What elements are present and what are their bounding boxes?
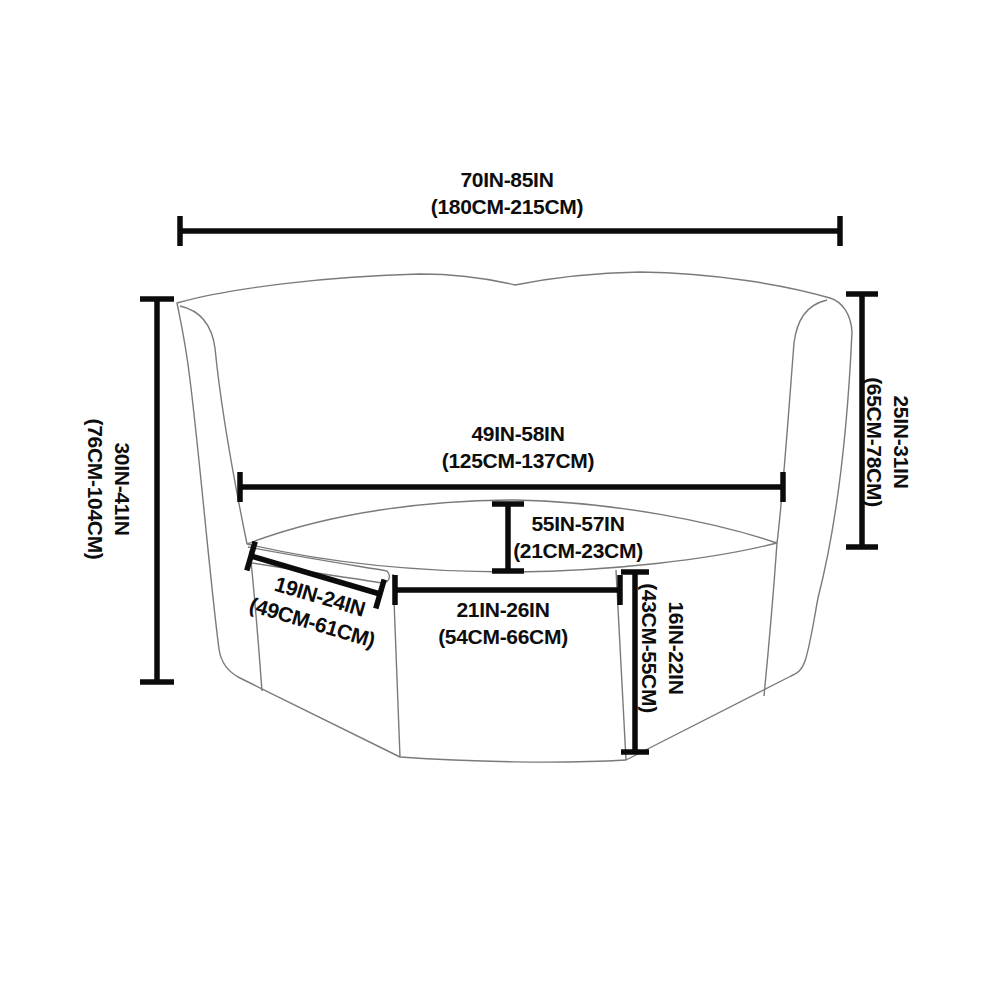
dimension-lines-group — [140, 216, 878, 752]
dimension-line-back-width — [240, 472, 783, 502]
sofa-left-inner-back-edge — [180, 306, 247, 544]
label-front-panel-width-in: 21IN-26IN — [438, 597, 568, 624]
label-back-to-seat-in: 55IN-57IN — [513, 511, 643, 538]
label-back-to-seat-cm: (21CM-23CM) — [513, 538, 643, 565]
label-back-height-right-in: 25IN-31IN — [887, 377, 914, 507]
label-back-height-left-cm: (76CM-104CM) — [81, 418, 108, 559]
label-back-height-left-in: 30IN-41IN — [108, 418, 135, 559]
label-total-width-cm: (180CM-215CM) — [431, 194, 583, 221]
sofa-seat-lower-arc — [247, 543, 777, 572]
label-back-height-left: 30IN-41IN (76CM-104CM) — [81, 418, 135, 559]
sofa-right-inner-back-edge — [764, 300, 827, 696]
label-front-panel-height: 16IN-22IN (43CM-55CM) — [635, 583, 689, 713]
label-back-width-cm: (125CM-137CM) — [442, 448, 594, 475]
label-back-width-in: 49IN-58IN — [442, 421, 594, 448]
diagram-canvas-svg — [0, 0, 1000, 1000]
label-front-panel-height-in: 16IN-22IN — [662, 583, 689, 713]
label-back-height-right: 25IN-31IN (65CM-78CM) — [860, 377, 914, 507]
label-front-panel-height-cm: (43CM-55CM) — [635, 583, 662, 713]
label-front-panel-width-cm: (54CM-66CM) — [438, 624, 568, 651]
label-back-width: 49IN-58IN (125CM-137CM) — [442, 421, 594, 475]
label-total-width: 70IN-85IN (180CM-215CM) — [431, 167, 583, 221]
label-back-height-right-cm: (65CM-78CM) — [860, 377, 887, 507]
dimension-line-back-height-left — [140, 299, 174, 682]
label-back-to-seat: 55IN-57IN (21CM-23CM) — [513, 511, 643, 565]
sofa-dimension-diagram: 70IN-85IN (180CM-215CM) 30IN-41IN (76CM-… — [0, 0, 1000, 1000]
label-front-panel-width: 21IN-26IN (54CM-66CM) — [438, 597, 568, 651]
label-total-width-in: 70IN-85IN — [431, 167, 583, 194]
